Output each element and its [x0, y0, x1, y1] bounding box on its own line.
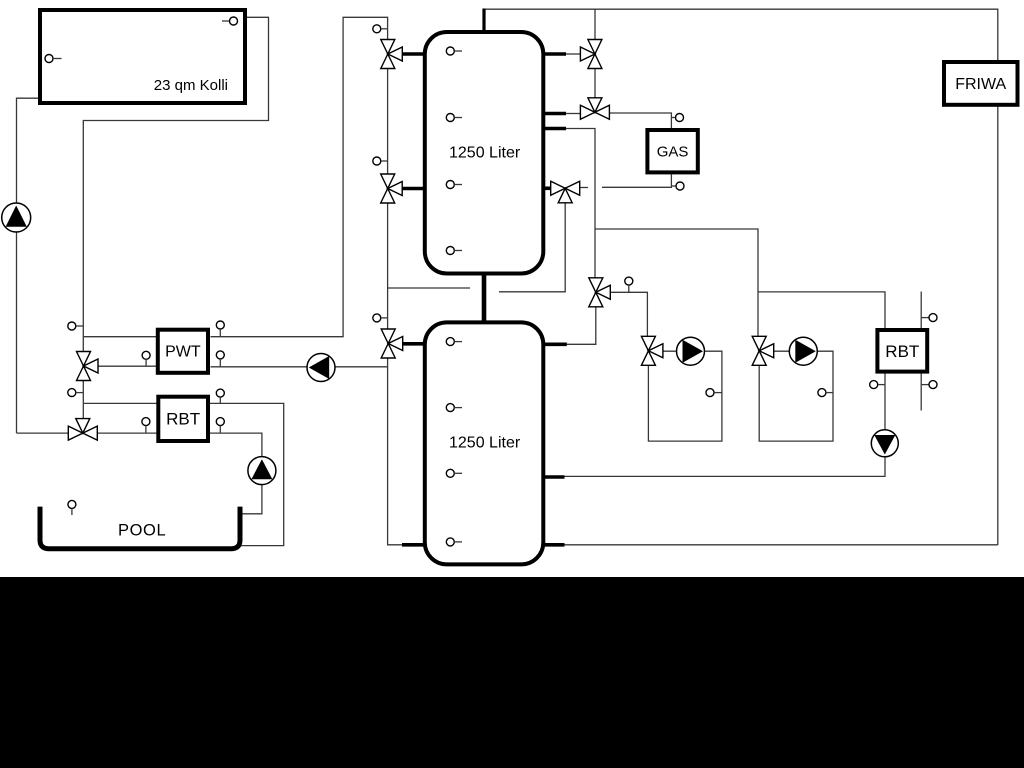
svg-text:FRIWA: FRIWA [955, 76, 1006, 93]
svg-text:23 qm Kolli: 23 qm Kolli [154, 77, 228, 94]
svg-text:POOL: POOL [118, 522, 166, 540]
svg-text:RBT: RBT [166, 410, 200, 429]
svg-text:RBT: RBT [885, 342, 919, 361]
svg-text:GAS: GAS [657, 144, 689, 161]
svg-text:1250 Liter: 1250 Liter [449, 435, 521, 452]
svg-text:1250 Liter: 1250 Liter [449, 145, 521, 162]
svg-text:PWT: PWT [165, 344, 201, 361]
